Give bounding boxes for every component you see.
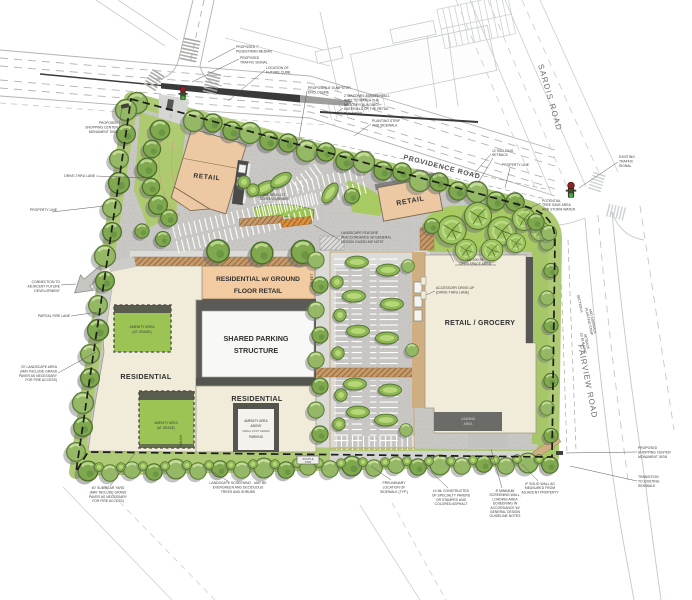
svg-text:MATERIALS OF THE RETAIL: MATERIALS OF THE RETAIL <box>344 107 389 111</box>
svg-text:MASONRY BUILDING: MASONRY BUILDING <box>344 103 378 107</box>
svg-text:SHARED PARKING: SHARED PARKING <box>224 334 289 343</box>
svg-text:LANDSCAPE SCREENING - MAY BE: LANDSCAPE SCREENING - MAY BE <box>209 481 267 485</box>
svg-text:40' SUB/REAR YARD: 40' SUB/REAR YARD <box>92 486 125 490</box>
svg-text:DEVELOPMENT: DEVELOPMENT <box>34 289 60 293</box>
svg-text:ACCESSORY DRIVE-UP: ACCESSORY DRIVE-UP <box>436 286 475 290</box>
svg-text:AMENITY AREA: AMENITY AREA <box>130 325 156 329</box>
svg-text:PROPOSED 7': PROPOSED 7' <box>236 45 259 49</box>
svg-text:PLANTING STRIP: PLANTING STRIP <box>372 119 401 123</box>
svg-text:PROPERTY LINE: PROPERTY LINE <box>502 163 530 167</box>
svg-text:CONNECTION TO: CONNECTION TO <box>32 280 61 284</box>
svg-text:STRUCTURE: STRUCTURE <box>234 346 279 355</box>
svg-text:SCREEN SHRUBS: SCREEN SHRUBS <box>259 197 289 201</box>
svg-text:SHOPPING CENTER: SHOPPING CENTER <box>85 126 118 130</box>
svg-text:TRAFFIC: TRAFFIC <box>619 159 634 163</box>
svg-text:COLORED ASPHALT: COLORED ASPHALT <box>435 502 468 506</box>
svg-text:PAVER AS NECESSARY: PAVER AS NECESSARY <box>19 374 58 378</box>
svg-text:TRAFFIC SIGNAL: TRAFFIC SIGNAL <box>240 61 268 65</box>
svg-text:SETBACK: SETBACK <box>492 153 509 157</box>
svg-text:ENCLOSURE: ENCLOSURE <box>308 91 330 95</box>
svg-text:ADJACENT PROPERTY: ADJACENT PROPERTY <box>521 490 559 494</box>
svg-text:FUTURE CURB: FUTURE CURB <box>266 71 291 75</box>
svg-text:(SMALL AT/ST GRADE): (SMALL AT/ST GRADE) <box>242 429 270 433</box>
svg-text:SIDEWALK (TYP.): SIDEWALK (TYP.) <box>380 490 408 494</box>
svg-text:EVERGREEN AND DECIDUOUS: EVERGREEN AND DECIDUOUS <box>213 485 264 489</box>
svg-text:(DRIVE-THRU LANE): (DRIVE-THRU LANE) <box>436 291 469 295</box>
svg-text:(MAY INCLUDE GRASS: (MAY INCLUDE GRASS <box>90 490 128 494</box>
svg-text:ADJACENT FUTURE: ADJACENT FUTURE <box>27 285 60 289</box>
svg-text:TO EXISTING: TO EXISTING <box>638 479 660 483</box>
svg-text:AREA: AREA <box>464 422 474 426</box>
svg-text:AND STORM WATER: AND STORM WATER <box>542 207 576 211</box>
svg-text:DESIGN GUIDELINE NOTE: DESIGN GUIDELINE NOTE <box>341 240 384 244</box>
svg-text:(MAY INCLUDE GRASS: (MAY INCLUDE GRASS <box>20 369 58 373</box>
svg-text:ABOVE: ABOVE <box>251 424 262 428</box>
svg-text:2' MASONRY SCREEN WALL: 2' MASONRY SCREEN WALL <box>344 94 390 98</box>
svg-text:FOR FIRE ACCESS): FOR FIRE ACCESS) <box>92 499 124 503</box>
svg-text:RESIDENTIAL: RESIDENTIAL <box>120 372 172 381</box>
svg-text:LOCATION OF: LOCATION OF <box>266 66 289 70</box>
svg-text:EXISTING: EXISTING <box>619 155 635 159</box>
svg-text:RESIDENTIAL: RESIDENTIAL <box>231 394 283 403</box>
svg-text:OR STAMPED AND: OR STAMPED AND <box>436 498 467 502</box>
svg-text:DRIVE-THRU LANE: DRIVE-THRU LANE <box>64 174 95 178</box>
svg-text:SIGNAL: SIGNAL <box>619 164 632 168</box>
svg-text:LOADING: LOADING <box>461 417 476 421</box>
svg-text:AND SIDEWALK: AND SIDEWALK <box>372 124 398 128</box>
svg-text:AMENITY AREA: AMENITY AREA <box>154 421 178 425</box>
svg-text:OF SPECIALTY PAVERS: OF SPECIALTY PAVERS <box>432 493 471 497</box>
svg-text:20' LANDSCAPE AREA: 20' LANDSCAPE AREA <box>21 365 58 369</box>
svg-text:WALL TO MATCH THE: WALL TO MATCH THE <box>344 98 380 102</box>
svg-text:IN ACCORDANCE W/ GENERAL: IN ACCORDANCE W/ GENERAL <box>341 235 392 239</box>
svg-text:PROPOSED: PROPOSED <box>240 56 260 60</box>
svg-text:SHOPPING CENTER: SHOPPING CENTER <box>638 450 671 454</box>
svg-text:STOP: STOP <box>305 461 312 464</box>
svg-text:OPEN SPACE AREA: OPEN SPACE AREA <box>459 262 492 266</box>
svg-text:STREET: STREET <box>310 274 314 287</box>
svg-text:MONUMENT SIGN: MONUMENT SIGN <box>89 130 119 134</box>
svg-text:PARKING: PARKING <box>249 435 264 439</box>
svg-text:(AT GRADE): (AT GRADE) <box>157 426 175 430</box>
svg-text:FOR FIRE ACCESS): FOR FIRE ACCESS) <box>25 378 57 382</box>
svg-text:FLOOR RETAIL: FLOOR RETAIL <box>234 288 282 295</box>
svg-text:RESIDENTIAL w/ GROUND: RESIDENTIAL w/ GROUND <box>216 276 300 283</box>
svg-text:BUILDINGS: BUILDINGS <box>344 112 363 116</box>
svg-text:PEDESTRIAN MEDIAN: PEDESTRIAN MEDIAN <box>236 50 272 54</box>
svg-text:PROPOSED: PROPOSED <box>638 446 658 450</box>
svg-text:RETAIL / GROCERY: RETAIL / GROCERY <box>445 320 515 327</box>
svg-text:PROPOSED 8' DUMPSTER: PROPOSED 8' DUMPSTER <box>308 86 351 90</box>
svg-text:±2 ML CONSTRUCTED: ±2 ML CONSTRUCTED <box>433 489 470 493</box>
svg-text:PAVER AS NECESSARY: PAVER AS NECESSARY <box>89 495 128 499</box>
svg-text:LOCATION OF: LOCATION OF <box>383 485 406 489</box>
svg-text:AMENITY AREA: AMENITY AREA <box>244 419 268 423</box>
svg-text:PRELIMINARY: PRELIMINARY <box>383 481 407 485</box>
svg-text:PROPOSED: PROPOSED <box>99 121 119 125</box>
svg-text:PARTIAL FIRE LANE: PARTIAL FIRE LANE <box>38 314 71 318</box>
svg-text:MULCH: MULCH <box>179 434 183 447</box>
svg-text:TRANSITION: TRANSITION <box>638 475 659 479</box>
svg-text:LANDSCAPE FEATURE: LANDSCAPE FEATURE <box>341 231 379 235</box>
svg-text:(AT GRADE): (AT GRADE) <box>132 330 151 334</box>
svg-text:PROPERTY LINE: PROPERTY LINE <box>30 208 58 212</box>
svg-text:MONUMENT SIGN: MONUMENT SIGN <box>638 455 668 459</box>
svg-text:TREES AND SHRUBS: TREES AND SHRUBS <box>221 490 256 494</box>
svg-text:SIDEWALK: SIDEWALK <box>638 484 656 488</box>
svg-text:GUIDELINE NOTES: GUIDELINE NOTES <box>490 514 522 518</box>
